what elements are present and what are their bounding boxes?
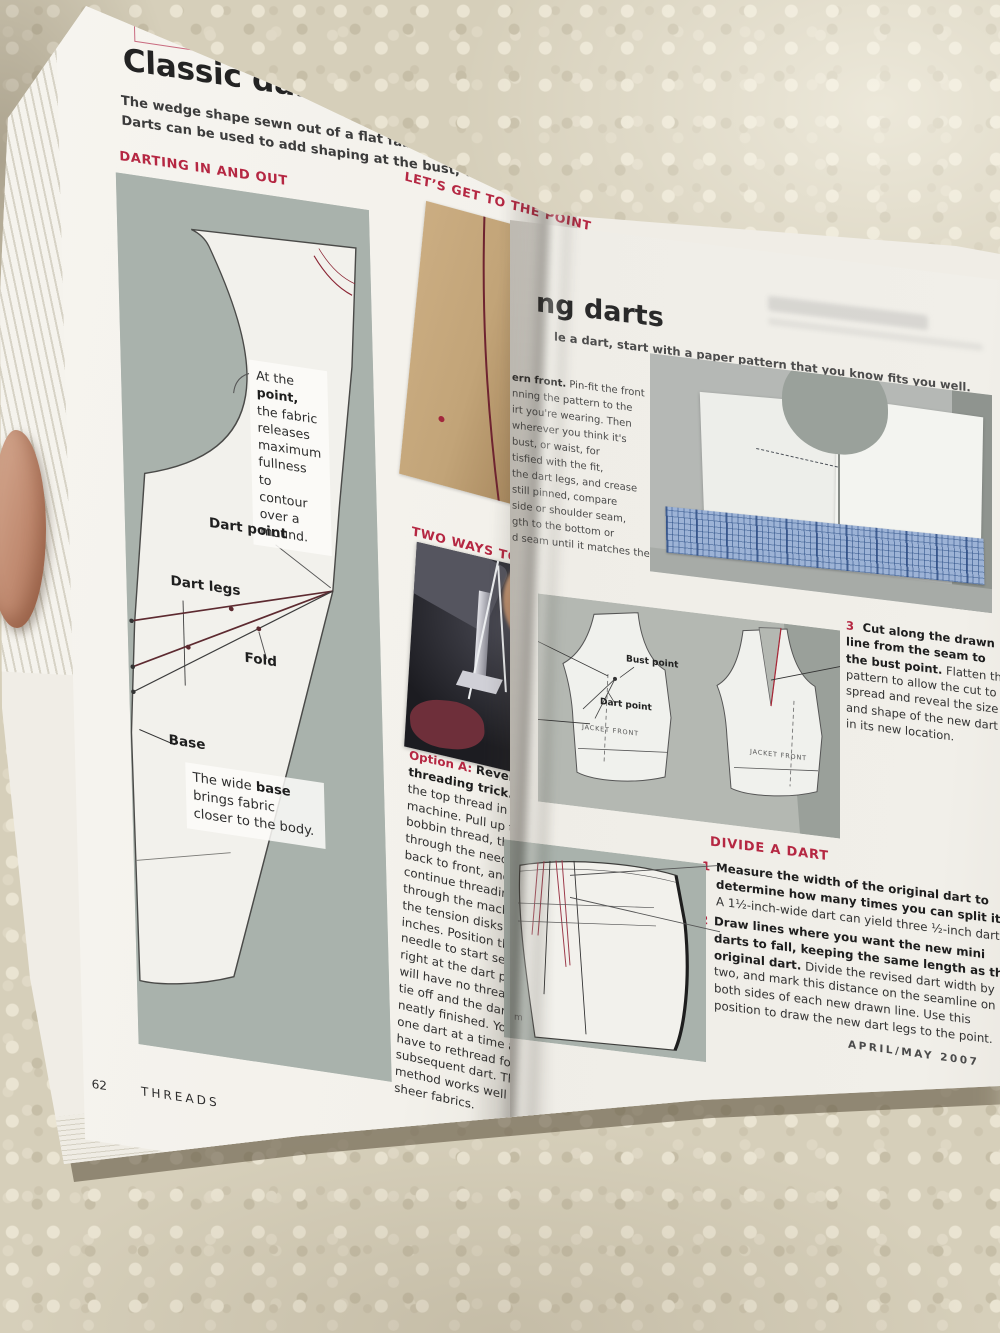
base-note-rest: brings fabric closer to the body.: [193, 788, 314, 839]
fabric: [408, 697, 486, 753]
left-page-footer: 62 THREADS: [91, 1077, 219, 1110]
leader-lines: [570, 827, 722, 956]
right-page: ng darts le a dart, start with a paper p…: [510, 220, 1000, 1184]
base-note-bold: base: [256, 780, 291, 800]
page-number: 62: [91, 1077, 107, 1093]
pattern-tracing-photo: [650, 353, 992, 613]
dart-diagram-panel: At the point, the fabric releases maximu…: [116, 172, 392, 1082]
jacket-patterns-photo: Bust point Dart point JACKET FRONT JACKE…: [538, 593, 840, 838]
dart-diagram-svg: [116, 172, 392, 1082]
step-3-number: 3: [846, 618, 854, 633]
magazine-name: THREADS: [141, 1084, 220, 1110]
jacket-patterns-svg: [538, 593, 840, 838]
step-3-caption: 3 Cut along the drawn line from the seam…: [846, 617, 1000, 751]
divide-a-dart-heading: DIVIDE A DART: [710, 835, 829, 865]
step-3-rest: Flatten the pattern to allow the cut to …: [846, 663, 1000, 743]
